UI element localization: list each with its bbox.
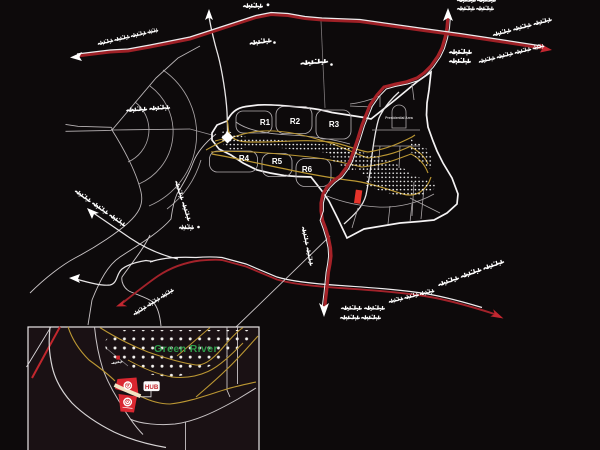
svg-text:R3: R3	[329, 120, 340, 129]
svg-text:R6: R6	[302, 165, 313, 174]
svg-text:HUB: HUB	[145, 384, 159, 391]
svg-text:R4: R4	[239, 154, 250, 163]
svg-text:R1: R1	[260, 118, 271, 127]
svg-text:Green River: Green River	[154, 343, 218, 355]
svg-text:R5: R5	[272, 157, 283, 166]
svg-text:Presidential Area: Presidential Area	[385, 116, 413, 120]
svg-text:R2: R2	[290, 117, 301, 126]
